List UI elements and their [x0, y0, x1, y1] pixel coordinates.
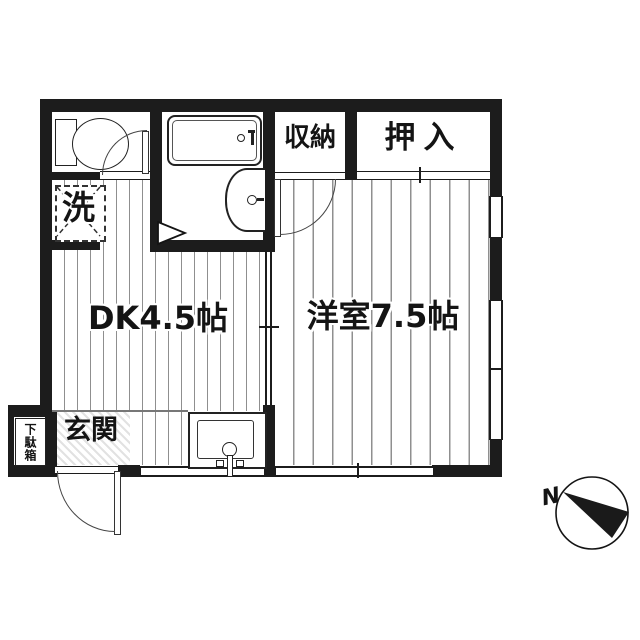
window-right-upper [489, 196, 503, 238]
washbasin-tap-icon [257, 198, 264, 201]
entrance-label: 玄関 [53, 416, 129, 446]
window-bottom-western-tick [357, 463, 359, 478]
window-right-lower-tick [489, 368, 503, 370]
kitchen-tap-icon [216, 460, 224, 467]
shoe-cabinet-label: 下駄箱 [22, 423, 39, 462]
kitchen-faucet-stem [227, 455, 233, 477]
bathtub-icon [167, 115, 262, 166]
window-right-lower [489, 300, 503, 440]
storage-label: 収納 [275, 124, 345, 153]
bathtub-inner [172, 120, 257, 161]
bathtub-tap-icon [251, 133, 254, 145]
floorplan-canvas: 下駄箱 洗 [0, 0, 640, 640]
window-bottom-western [275, 466, 434, 477]
partition-slider-line [265, 252, 267, 405]
wall-right-upper [490, 99, 502, 196]
partition-slider-tick [259, 326, 279, 328]
kitchen-sink-icon [188, 412, 267, 469]
washer-label: 洗 [55, 190, 102, 226]
wall-left [40, 99, 52, 417]
partition-slider-area [263, 252, 275, 405]
entrance-step-line [52, 410, 188, 412]
north-label: N [540, 483, 563, 511]
entrance-door-arc [57, 471, 115, 532]
wall-bottom-left-segment [118, 465, 140, 477]
western-room-label: 洋室7.5帖 [290, 299, 476, 334]
wall-bottom-right-segment [432, 465, 502, 477]
kitchen-tap-icon [236, 460, 244, 467]
bathtub-faucet-icon [237, 134, 245, 142]
shoe-cabinet-box: 下駄箱 [15, 418, 46, 466]
compass-icon: N [540, 470, 640, 558]
closet-fusuma-tick [419, 167, 421, 183]
toilet-wall-bottom [52, 172, 100, 180]
partition-slider-line [270, 252, 272, 405]
washbasin-faucet-icon [247, 195, 257, 205]
closet-fusuma [357, 171, 490, 180]
storage-wall-right [345, 112, 357, 180]
bathroom-door-marker-icon [156, 221, 188, 246]
washbasin-icon [225, 168, 265, 232]
closet-label: 押入 [357, 121, 490, 155]
dk-floor-strip [130, 411, 186, 465]
entrance-door-leaf [114, 471, 121, 535]
dk-label: DK4.5帖 [62, 301, 254, 336]
wall-right-middle [490, 238, 502, 300]
